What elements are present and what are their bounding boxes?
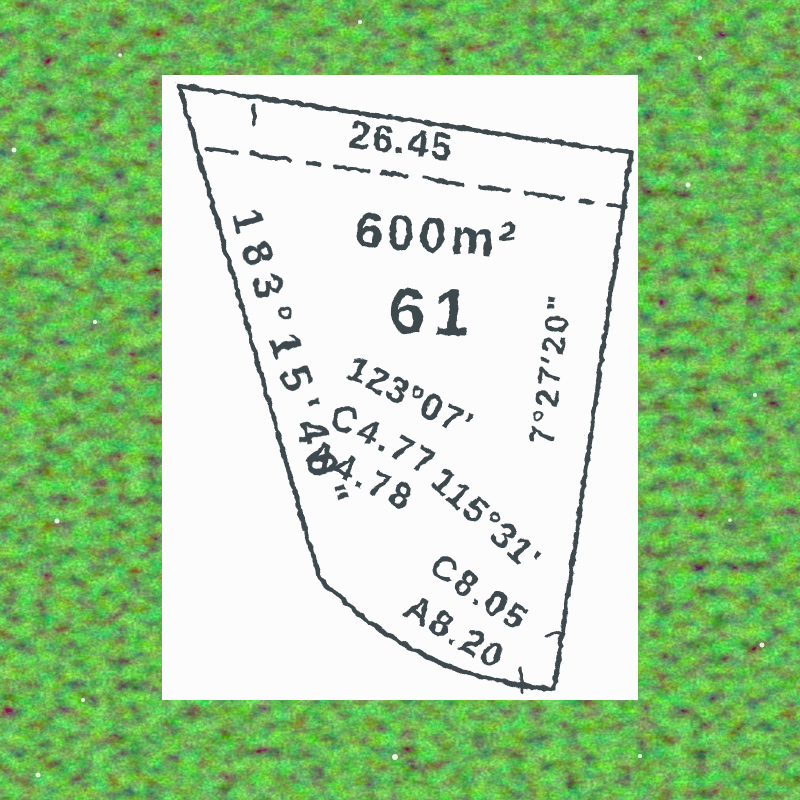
lot-plat-drawing: 26.45 183°15'40" 7°27'20" 600m² 61 123°0… xyxy=(162,75,638,700)
survey-panel: 26.45 183°15'40" 7°27'20" 600m² 61 123°0… xyxy=(162,75,638,700)
lot-area-label: 600m² xyxy=(352,201,520,268)
lot-number-label: 61 xyxy=(386,272,478,349)
scene: 26.45 183°15'40" 7°27'20" 600m² 61 123°0… xyxy=(0,0,800,800)
bottom-arc-tick xyxy=(519,667,522,691)
right-boundary-bearing: 7°27'20" xyxy=(522,290,577,446)
